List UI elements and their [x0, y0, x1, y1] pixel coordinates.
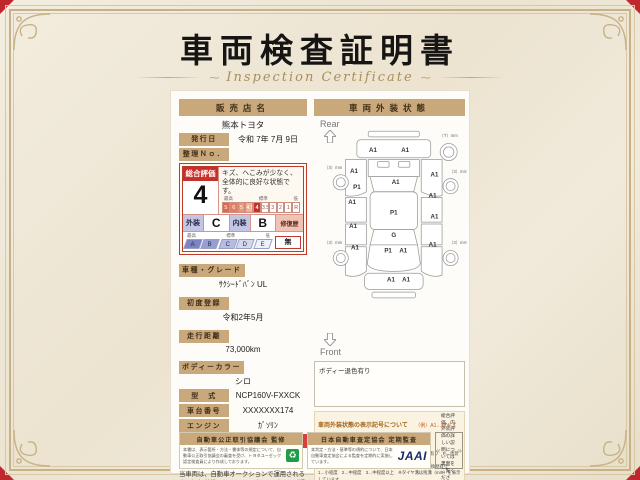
- field-block: ボディーカラーシロ: [179, 356, 307, 388]
- score-scale-cell: 1: [284, 202, 292, 213]
- subtitle-row: Inspection Certificate: [0, 68, 640, 86]
- evaluation-box: 総合評価 4 キズ、へこみが少なく、全体的に良好な状態です。 最高 標準 低 S…: [179, 163, 307, 256]
- page-title: 車両検査証明書: [0, 24, 640, 72]
- score-scale-cell: 4: [253, 202, 261, 213]
- jaai-note: 本判定・方法・基準等の規約について、日本自動車査定協会による監査を定期的に実施し…: [311, 447, 395, 465]
- content-panel: 販売店名 熊本トヨタ 発行日令和 7年 7月 9日整理Ｎｏ． 総合評価 4 キズ…: [170, 90, 470, 474]
- interior-grade: B: [251, 215, 277, 231]
- tread-mark: 〔3〕mm: [324, 165, 342, 170]
- legend-title: 車両外装状態の表示記号について: [318, 423, 408, 429]
- score-scale-cell: 5: [238, 202, 246, 213]
- back-side-note-box: 総合評価、内外装評価の詳しい説明については裏面をご覧ください。: [435, 432, 463, 469]
- field-label: 走行距離: [179, 330, 229, 343]
- jaai-box: 日本自動車査定協会 定期監査 本判定・方法・基準等の規約について、日本自動車査定…: [307, 432, 431, 469]
- field-label: エンジン: [179, 419, 229, 432]
- fair-trade-logo-icon: ♻: [286, 449, 299, 462]
- jaai-logo: JAAI: [398, 449, 427, 463]
- damage-mark: A1: [428, 192, 436, 199]
- body-note-box: ボディー退色有り: [314, 361, 465, 407]
- score-scale-cell: 4.5: [245, 202, 253, 213]
- footer-strip: 自動車公正取引協議会 監修 本書は、表示箇所・方法・書体等の規定について、自動車…: [179, 432, 463, 469]
- field-label: 整理Ｎｏ．: [179, 148, 229, 161]
- fair-trade-body: 本書は、表示箇所・方法・書体等の規定について、自動車公正取引協議会の審査を受け、…: [180, 445, 302, 467]
- damage-mark: P1: [390, 209, 398, 216]
- corner-flourish-icon: [586, 426, 630, 470]
- subtitle-flourish: [421, 68, 431, 86]
- field-label: 型 式: [179, 389, 229, 402]
- damage-mark: P1: [353, 183, 361, 190]
- field-value: シロ: [179, 374, 307, 388]
- field-value: NCP160V-FXXCK: [229, 391, 307, 400]
- legend-line: 1…小程度 2…中程度 3…中程度以上 ※タイヤ溝は残溝（mm）を表示しています…: [318, 470, 461, 480]
- field-block: 車種・グレードｻｸｼｰﾄﾞﾊﾞﾝ UL: [179, 259, 307, 291]
- vehicle-info-column: 販売店名 熊本トヨタ 発行日令和 7年 7月 9日整理Ｎｏ． 総合評価 4 キズ…: [179, 99, 307, 480]
- score-scale-cell: 2: [277, 202, 285, 213]
- grade-scale-cell: E: [253, 239, 273, 249]
- field-row: 発行日令和 7年 7月 9日: [179, 133, 307, 146]
- field-block: 走行距離73,000km: [179, 325, 307, 355]
- repair-history-value: 無: [275, 236, 301, 249]
- top-fields: 発行日令和 7年 7月 9日整理Ｎｏ．: [179, 133, 307, 161]
- exterior-grade: C: [204, 215, 230, 231]
- damage-mark: A1: [349, 222, 357, 229]
- repair-history-label: 修復歴: [276, 215, 303, 231]
- front-label: Front: [320, 347, 341, 357]
- score-scale-cell: 3.5: [261, 202, 269, 213]
- score-scale-cell: 3: [269, 202, 277, 213]
- field-row: エンジンｶﾞｿﾘﾝ: [179, 419, 307, 432]
- field-value: XXXXXXX174: [229, 406, 307, 415]
- field-label: 車種・グレード: [179, 264, 245, 277]
- score-scale-cell: 6: [230, 202, 238, 213]
- car-top-view-diagram: A1A1A1P1A1A1A1A1P1A1A1GA1A1P1A1A1A1 〔3〕m…: [324, 129, 466, 319]
- damage-mark: A1: [348, 199, 356, 206]
- subtitle-line: [136, 77, 202, 78]
- damage-mark: A1: [430, 171, 438, 178]
- field-value: ｻｸｼｰﾄﾞﾊﾞﾝ UL: [179, 277, 307, 291]
- damage-mark: G: [391, 232, 396, 239]
- grade-scale-wrap: 最高 標準 低 ABCDE: [185, 233, 272, 249]
- jaai-body: 本判定・方法・基準等の規約について、日本自動車査定協会による監査を定期的に実施し…: [308, 445, 430, 467]
- damage-mark: P1: [384, 247, 392, 254]
- field-value: 73,000km: [179, 343, 307, 355]
- damage-mark: A1: [350, 167, 358, 174]
- overall-score-value: 4: [183, 181, 218, 209]
- evaluation-comment: キズ、へこみが少なく、全体的に良好な状態です。: [222, 169, 300, 197]
- field-label: ボディーカラー: [179, 361, 244, 374]
- dealer-header: 販売店名: [179, 99, 307, 116]
- damage-mark: A1: [387, 276, 395, 283]
- field-row: 車台番号XXXXXXX174: [179, 404, 307, 417]
- field-label: 発行日: [179, 133, 229, 146]
- exterior-label: 外装: [183, 215, 204, 231]
- arrow-down-icon: [324, 333, 336, 346]
- field-label: 初度登録: [179, 297, 229, 310]
- fair-trade-header: 自動車公正取引協議会 監修: [180, 433, 302, 445]
- grade-row: 外装 C 内装 B 修復歴: [183, 215, 303, 232]
- damage-mark: A1: [402, 276, 410, 283]
- score-scale-cell: S: [222, 202, 230, 213]
- grade-scale-bar: ABCDE: [185, 239, 272, 249]
- field-value: ｶﾞｿﾘﾝ: [229, 420, 307, 431]
- damage-mark: A1: [369, 147, 377, 154]
- evaluation-top-row: 総合評価 4 キズ、へこみが少なく、全体的に良好な状態です。 最高 標準 低 S…: [183, 167, 303, 216]
- damage-mark: A1: [401, 147, 409, 154]
- evaluation-box-inner: 総合評価 4 キズ、へこみが少なく、全体的に良好な状態です。 最高 標準 低 S…: [182, 166, 304, 253]
- field-row: 型 式NCP160V-FXXCK: [179, 389, 307, 402]
- subtitle-flourish: [209, 68, 219, 86]
- field-block: 初度登録令和2年5月: [179, 292, 307, 324]
- overall-score-label: 総合評価: [183, 167, 218, 181]
- car-diagram-area: Rear: [314, 119, 465, 359]
- corner-flourish-icon: [10, 426, 54, 470]
- tread-mark: 〔3〕mm: [324, 239, 342, 244]
- damage-mark: A1: [430, 213, 438, 220]
- damage-mark: A1: [399, 247, 407, 254]
- interior-label: 内装: [230, 215, 251, 231]
- tread-mark: 〔T〕mm: [439, 132, 458, 137]
- back-side-note: 総合評価、内外装評価の詳しい説明については裏面をご覧ください。: [441, 413, 457, 480]
- exterior-header: 車両外装状態: [314, 99, 465, 116]
- spec-fields: 車種・グレードｻｸｼｰﾄﾞﾊﾞﾝ UL初度登録令和2年5月走行距離73,000k…: [179, 259, 307, 432]
- field-label: 車台番号: [179, 404, 229, 417]
- field-value: 令和2年5月: [179, 310, 307, 324]
- damage-mark: A1: [351, 244, 359, 251]
- jaai-header: 日本自動車査定協会 定期監査: [308, 433, 430, 445]
- subtitle-line: [438, 77, 504, 78]
- fair-trade-note: 本書は、表示箇所・方法・書体等の規定について、自動車公正取引協議会の審査を受け、…: [183, 447, 283, 465]
- rear-label: Rear: [320, 119, 340, 129]
- field-value: 令和 7年 7月 9日: [229, 134, 307, 145]
- page-subtitle: Inspection Certificate: [226, 70, 413, 85]
- score-scale-cell: R: [292, 202, 300, 213]
- tread-mark: 〔3〕mm: [449, 168, 466, 173]
- overall-score-cell: 総合評価 4: [183, 167, 219, 215]
- field-row: 整理Ｎｏ．: [179, 148, 307, 161]
- tread-mark: 〔3〕mm: [449, 239, 466, 244]
- score-scale-bar: S654.543.5321R: [222, 202, 300, 213]
- damage-mark: A1: [391, 179, 399, 186]
- damage-mark: A1: [428, 241, 436, 248]
- disclaimer-text: 当車両は、自動車オークションで運用される車両評価基準に沿い、トヨタユーゼックが認…: [179, 471, 307, 480]
- grade-scale-row: 最高 標準 低 ABCDE 無: [183, 232, 303, 251]
- evaluation-detail-cell: キズ、へこみが少なく、全体的に良好な状態です。 最高 標準 低 S654.543…: [219, 167, 303, 215]
- fair-trade-box: 自動車公正取引協議会 監修 本書は、表示箇所・方法・書体等の規定について、自動車…: [179, 432, 303, 469]
- certificate-page: 車両検査証明書 Inspection Certificate 販売店名 熊本トヨ…: [0, 0, 640, 480]
- dealer-name: 熊本トヨタ: [179, 116, 307, 133]
